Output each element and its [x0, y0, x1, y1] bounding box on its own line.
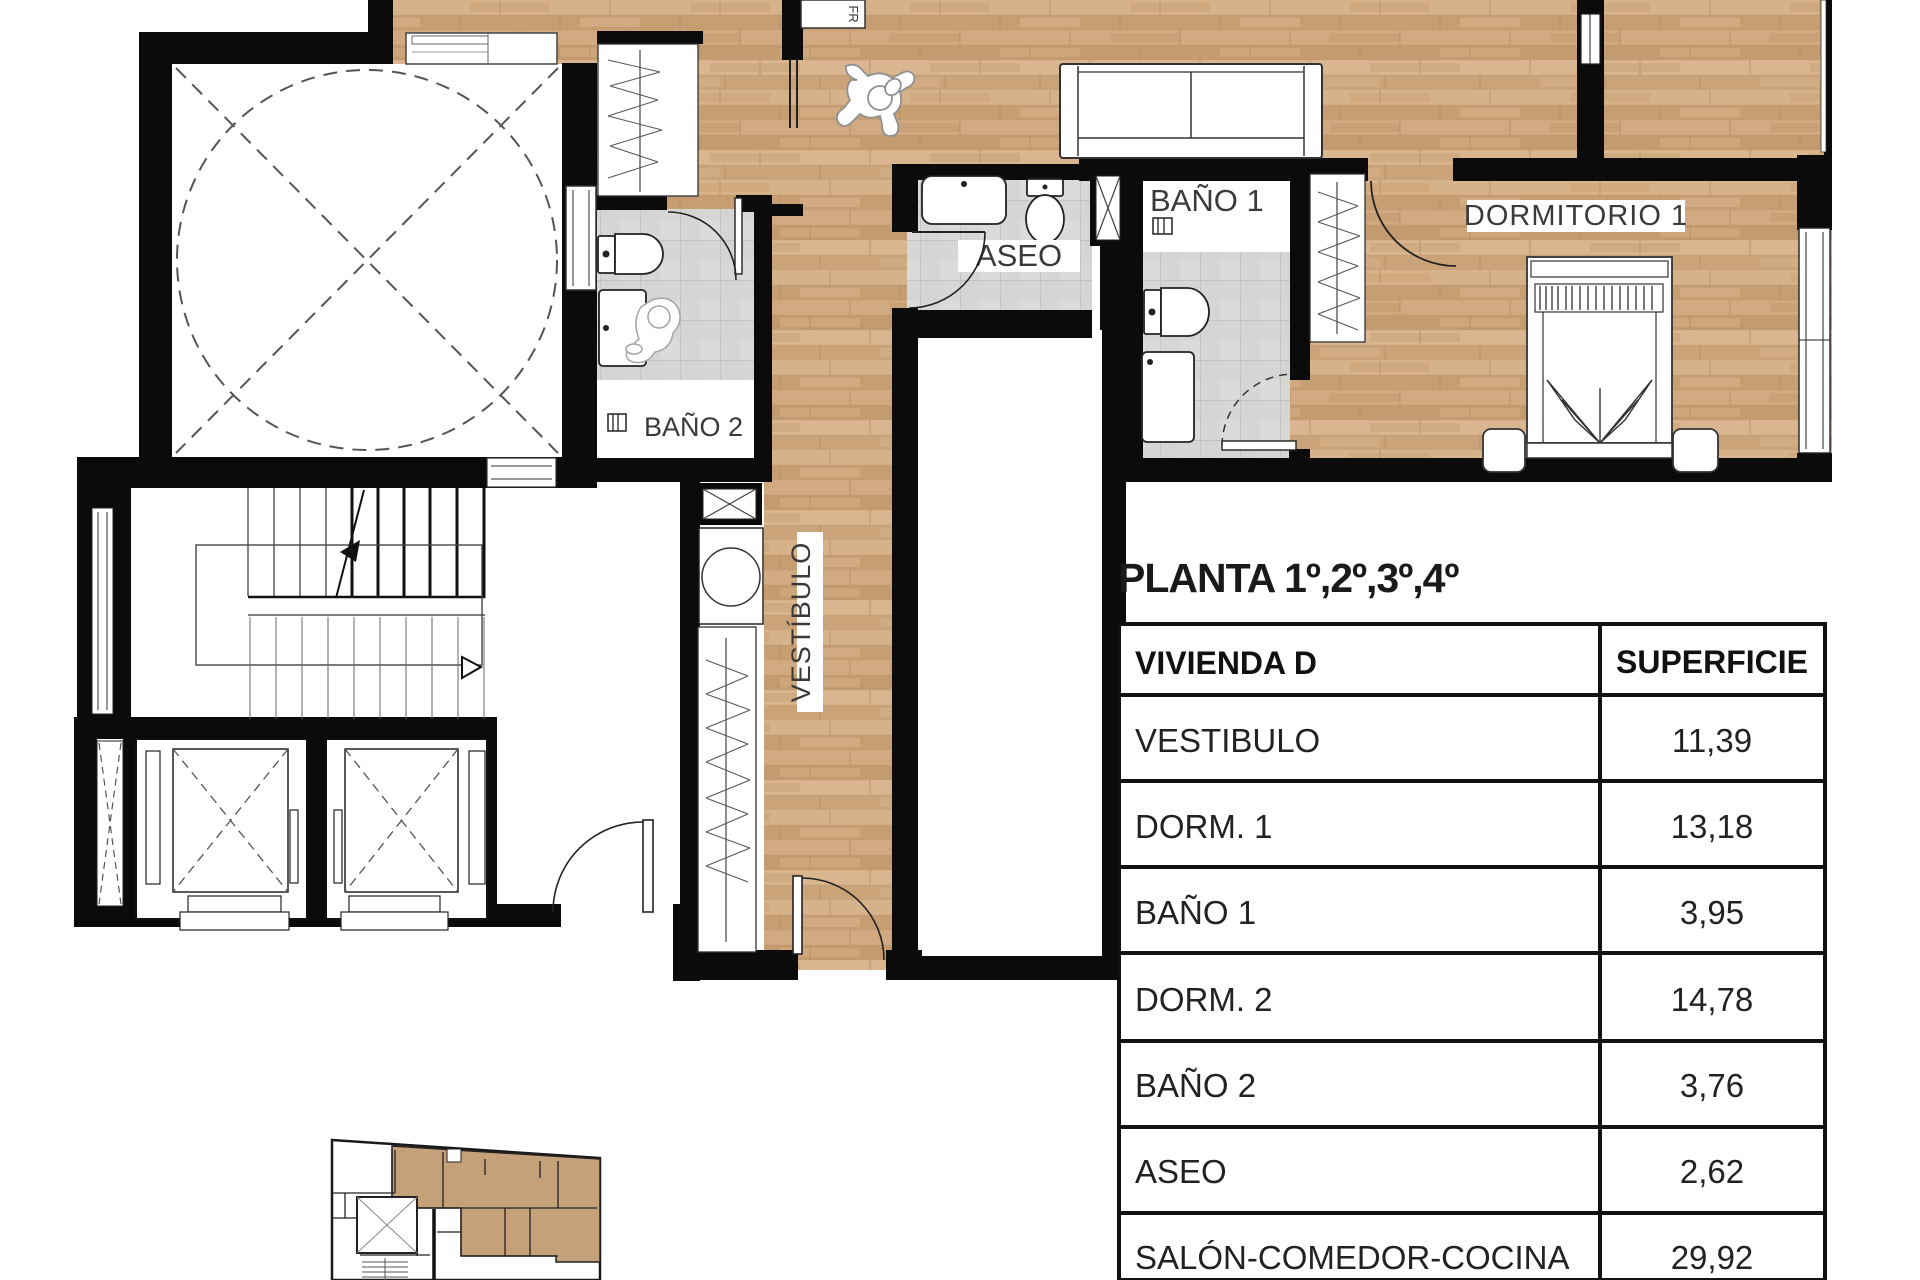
svg-text:DORM. 2: DORM. 2: [1135, 981, 1273, 1018]
svg-text:VIVIENDA D: VIVIENDA D: [1135, 645, 1317, 681]
svg-text:DORM. 1: DORM. 1: [1135, 808, 1273, 845]
svg-text:2,62: 2,62: [1680, 1153, 1744, 1190]
svg-text:3,95: 3,95: [1680, 894, 1744, 931]
svg-text:BAÑO 1: BAÑO 1: [1150, 183, 1264, 218]
svg-text:11,39: 11,39: [1672, 722, 1752, 759]
svg-text:13,18: 13,18: [1671, 808, 1754, 845]
svg-text:DORMITORIO 1: DORMITORIO 1: [1464, 200, 1688, 232]
svg-text:SALÓN-COMEDOR-COCINA: SALÓN-COMEDOR-COCINA: [1135, 1239, 1570, 1276]
svg-text:ASEO: ASEO: [976, 238, 1062, 273]
svg-text:BAÑO 2: BAÑO 2: [644, 411, 743, 442]
svg-text:3,76: 3,76: [1680, 1067, 1744, 1104]
svg-text:VESTIBULO: VESTIBULO: [1135, 722, 1320, 759]
svg-text:PLANTA 1º,2º,3º,4º: PLANTA 1º,2º,3º,4º: [1118, 555, 1459, 601]
svg-text:FR: FR: [846, 5, 861, 22]
svg-text:14,78: 14,78: [1671, 981, 1754, 1018]
svg-text:BAÑO 2: BAÑO 2: [1135, 1067, 1256, 1104]
svg-text:ASEO: ASEO: [1135, 1153, 1227, 1190]
svg-text:SUPERFICIE: SUPERFICIE: [1616, 644, 1808, 680]
svg-text:VESTÍBULO: VESTÍBULO: [786, 542, 816, 703]
svg-text:BAÑO 1: BAÑO 1: [1135, 894, 1256, 931]
svg-text:29,92: 29,92: [1671, 1239, 1754, 1276]
